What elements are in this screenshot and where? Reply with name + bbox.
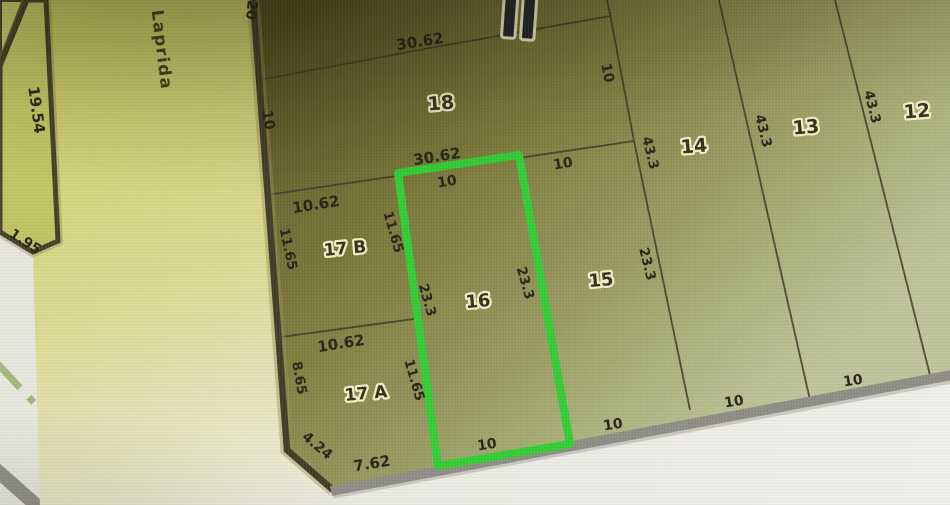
dimension-label: 10 bbox=[258, 109, 277, 131]
cadastral-map[interactable]: 30.6230.62101010201010.6211.6511.6510.62… bbox=[0, 0, 950, 505]
dimension-label: 10 bbox=[602, 416, 624, 435]
dimension-label: 10 bbox=[842, 372, 864, 391]
dimension-label: 20 bbox=[242, 0, 260, 21]
dimension-label: 10 bbox=[476, 436, 498, 455]
dimension-label: 10 bbox=[723, 393, 745, 412]
lot-label-15: 15 bbox=[588, 269, 615, 292]
lot-label-16: 16 bbox=[465, 290, 492, 313]
dimension-label: 10 bbox=[436, 173, 458, 192]
lot-label-14: 14 bbox=[680, 134, 708, 158]
lot-label-12: 12 bbox=[903, 99, 931, 123]
lot-label-17a: 17 A bbox=[344, 382, 389, 406]
lot-label-17b: 17 B bbox=[323, 237, 367, 261]
dimension-label: 10 bbox=[552, 155, 574, 174]
lot-label-18: 18 bbox=[427, 91, 455, 115]
lot-label-13: 13 bbox=[792, 115, 820, 139]
map-canvas: 30.6230.62101010201010.6211.6511.6510.62… bbox=[0, 0, 950, 505]
